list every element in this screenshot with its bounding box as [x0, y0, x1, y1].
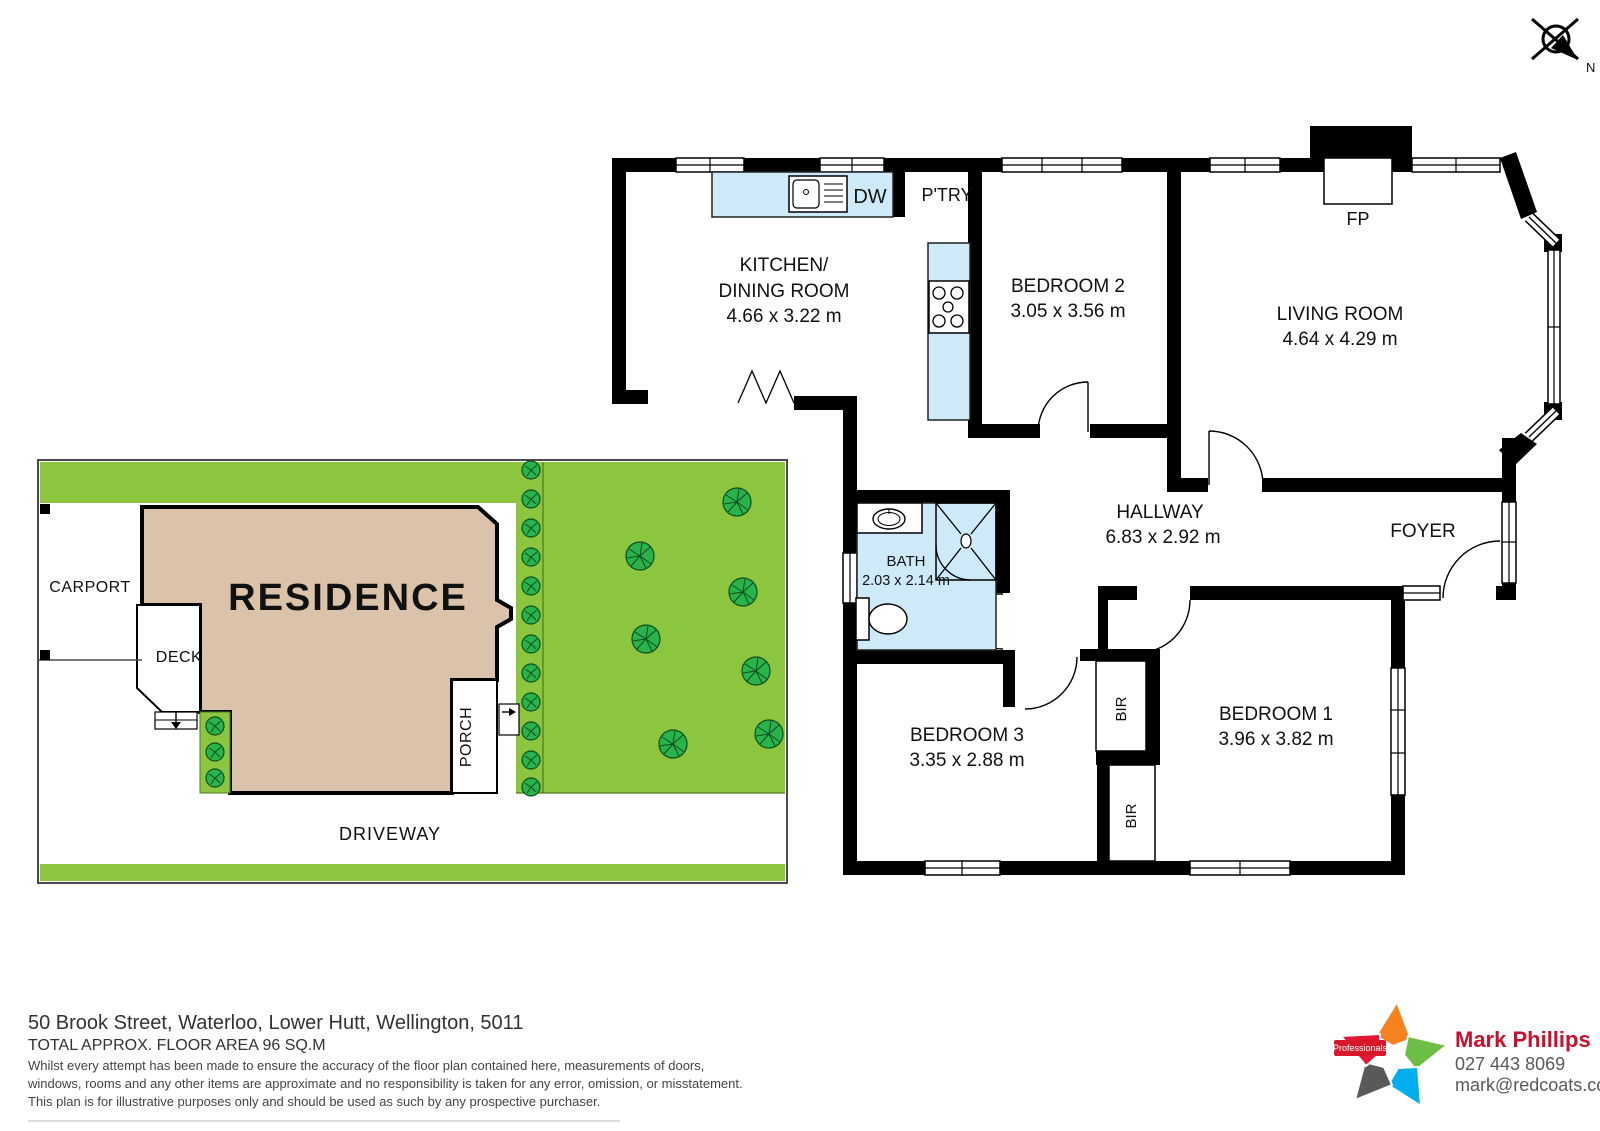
kitchen-sink-icon: [789, 176, 847, 212]
residence-label: RESIDENCE: [228, 577, 468, 619]
kitchen-label-2: DINING ROOM: [719, 281, 850, 302]
garden-bushes: [206, 717, 224, 787]
footer: 50 Brook Street, Waterloo, Lower Hutt, W…: [27, 1012, 743, 1121]
chimney: [1310, 126, 1412, 158]
hallway-dims: 6.83 x 2.92 m: [1105, 527, 1220, 548]
agent-block: Professionals Mark Phillips 027 443 8069…: [1333, 1002, 1600, 1106]
bedroom3-door: [1025, 657, 1077, 709]
bir2-label: BIR: [1123, 803, 1140, 828]
agent-phone: 027 443 8069: [1455, 1054, 1565, 1074]
bedroom3-dims: 3.35 x 2.88 m: [909, 750, 1024, 771]
bath-label: BATH: [887, 553, 926, 570]
kitchen-label-1: KITCHEN/: [740, 255, 829, 276]
bedroom2-label: BEDROOM 2: [1011, 276, 1125, 297]
carport-post: [40, 504, 50, 514]
compass-north-label: N: [1586, 60, 1595, 75]
fireplace-label: FP: [1346, 209, 1369, 229]
bedroom3-label: BEDROOM 3: [910, 725, 1024, 746]
bedroom1-door: [1137, 600, 1190, 653]
living-door: [1209, 431, 1263, 485]
bir1-label: BIR: [1113, 696, 1130, 721]
compass-icon: N: [1532, 19, 1595, 75]
deck-steps: [155, 712, 197, 729]
room-labels: KITCHEN/ DINING ROOM 4.66 x 3.22 m BEDRO…: [719, 185, 1456, 829]
agent-name: Mark Phillips: [1455, 1027, 1591, 1052]
porch-label: PORCH: [458, 707, 475, 767]
vanity-sink-icon: [857, 503, 922, 533]
professionals-star-logo-icon: Professionals: [1333, 1002, 1447, 1106]
footer-floor-area: TOTAL APPROX. FLOOR AREA 96 SQ.M: [28, 1037, 326, 1054]
deck-label: DECK: [156, 649, 202, 666]
floorplan-page: N: [0, 0, 1600, 1131]
carport-label: CARPORT: [49, 579, 130, 596]
footer-disclaimer-1: Whilst every attempt has been made to en…: [28, 1058, 704, 1073]
professionals-ribbon-label: Professionals: [1333, 1043, 1388, 1053]
living-label: LIVING ROOM: [1277, 304, 1404, 325]
footer-address: 50 Brook Street, Waterloo, Lower Hutt, W…: [28, 1012, 523, 1034]
foyer-label: FOYER: [1390, 521, 1455, 542]
lawn-bottom-strip: [40, 864, 785, 881]
bedroom1-dims: 3.96 x 3.82 m: [1218, 729, 1333, 750]
footer-disclaimer-3: This plan is for illustrative purposes o…: [28, 1094, 600, 1109]
bedroom1-label: BEDROOM 1: [1219, 704, 1333, 725]
floorplan-canvas: N: [0, 0, 1600, 1131]
living-dims: 4.64 x 4.29 m: [1282, 329, 1397, 350]
agent-email: mark@redcoats.co.nz: [1455, 1075, 1600, 1095]
entry-door: [1443, 541, 1500, 598]
site-plan: CARPORT DECK RESIDENCE PORCH DRIVEWAY: [38, 460, 787, 883]
pantry-label: P'TRY: [921, 185, 972, 205]
footer-disclaimer-2: windows, rooms and any other items are a…: [27, 1076, 743, 1091]
bedroom2-door: [1038, 382, 1088, 432]
driveway-label: DRIVEWAY: [339, 824, 441, 844]
bedroom2-dims: 3.05 x 3.56 m: [1010, 301, 1125, 322]
hallway-label: HALLWAY: [1116, 502, 1204, 523]
bath-dims: 2.03 x 2.14 m: [862, 573, 950, 589]
break-line-icon: [738, 371, 794, 403]
stove-icon: [929, 281, 969, 333]
kitchen-dims: 4.66 x 3.22 m: [726, 306, 841, 327]
carport-post: [40, 650, 50, 660]
dishwasher-label: DW: [853, 186, 886, 208]
porch-steps: [499, 704, 519, 735]
fireplace-hearth: [1324, 158, 1392, 204]
